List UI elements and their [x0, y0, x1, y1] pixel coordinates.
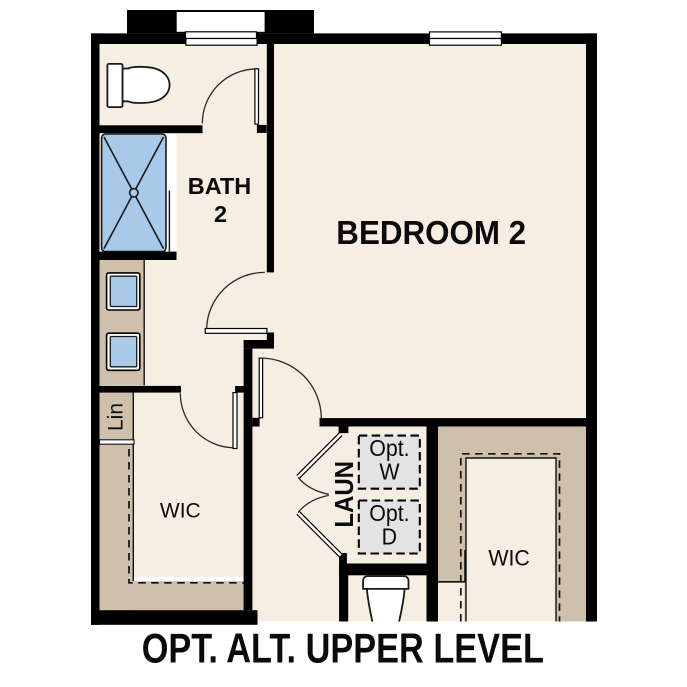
svg-text:OPT. ALT. UPPER LEVEL: OPT. ALT. UPPER LEVEL — [142, 625, 544, 672]
svg-text:BEDROOM 2: BEDROOM 2 — [336, 214, 526, 251]
svg-text:LAUN: LAUN — [330, 461, 359, 528]
svg-text:WIC: WIC — [160, 500, 201, 523]
svg-text:2: 2 — [214, 201, 227, 227]
svg-text:Opt.: Opt. — [369, 435, 409, 461]
svg-text:Opt.: Opt. — [369, 500, 409, 526]
svg-text:BATH: BATH — [188, 173, 252, 199]
svg-text:Lin: Lin — [105, 403, 128, 431]
svg-text:D: D — [382, 524, 397, 550]
svg-text:WIC: WIC — [488, 545, 530, 571]
svg-text:W: W — [379, 459, 399, 485]
